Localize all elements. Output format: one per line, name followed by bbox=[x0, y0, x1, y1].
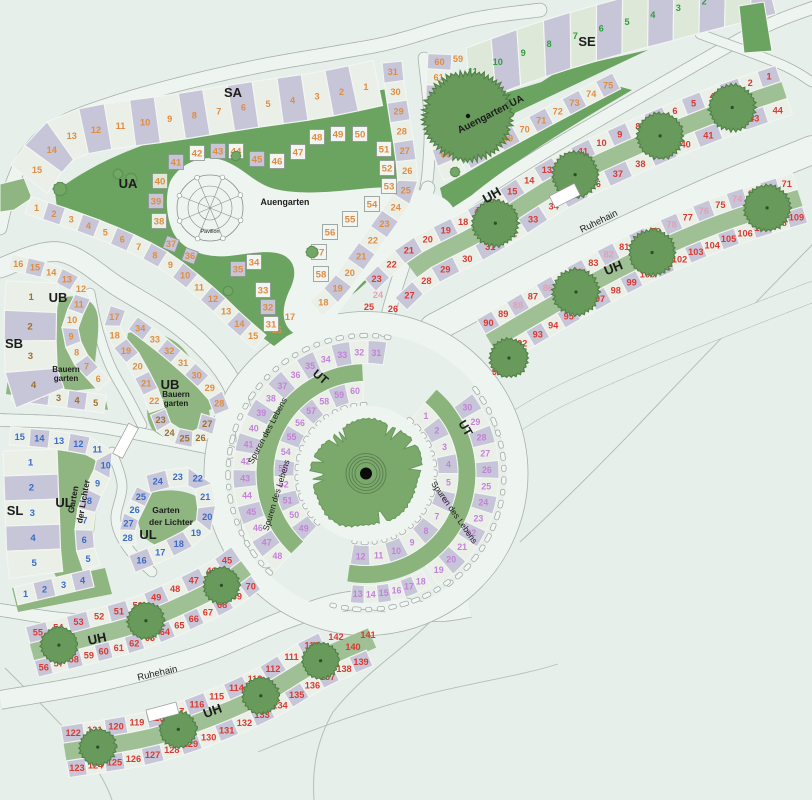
svg-text:3: 3 bbox=[315, 92, 320, 102]
svg-text:24: 24 bbox=[153, 477, 164, 487]
svg-text:122: 122 bbox=[66, 728, 81, 738]
svg-text:73: 73 bbox=[569, 98, 579, 108]
svg-text:UA: UA bbox=[119, 176, 138, 191]
svg-text:105: 105 bbox=[721, 234, 736, 244]
svg-text:127: 127 bbox=[145, 750, 160, 760]
svg-text:31: 31 bbox=[388, 67, 398, 77]
svg-text:6: 6 bbox=[672, 106, 677, 116]
svg-text:33: 33 bbox=[528, 215, 538, 225]
svg-text:112: 112 bbox=[265, 664, 280, 674]
svg-text:3: 3 bbox=[61, 580, 66, 590]
svg-text:7: 7 bbox=[216, 106, 221, 116]
svg-text:13: 13 bbox=[54, 436, 64, 446]
svg-text:6: 6 bbox=[599, 24, 604, 34]
svg-text:5: 5 bbox=[103, 227, 108, 237]
svg-text:34: 34 bbox=[135, 324, 146, 334]
svg-text:115: 115 bbox=[209, 692, 224, 702]
svg-text:15: 15 bbox=[507, 187, 517, 197]
svg-text:77: 77 bbox=[683, 213, 693, 223]
svg-text:SL: SL bbox=[7, 503, 24, 518]
svg-text:9: 9 bbox=[617, 130, 622, 140]
svg-text:43: 43 bbox=[213, 146, 224, 157]
svg-text:7: 7 bbox=[136, 242, 141, 252]
svg-text:8: 8 bbox=[546, 39, 551, 49]
svg-text:19: 19 bbox=[121, 346, 131, 356]
svg-text:56: 56 bbox=[295, 418, 305, 428]
svg-text:30: 30 bbox=[462, 254, 472, 264]
svg-text:70: 70 bbox=[519, 125, 529, 135]
svg-text:24: 24 bbox=[164, 428, 175, 438]
svg-text:78: 78 bbox=[666, 220, 676, 230]
svg-text:18: 18 bbox=[174, 539, 184, 549]
svg-text:2: 2 bbox=[42, 585, 47, 595]
svg-text:16: 16 bbox=[136, 556, 146, 566]
svg-text:2: 2 bbox=[29, 483, 34, 494]
svg-text:86: 86 bbox=[543, 283, 553, 293]
svg-text:22: 22 bbox=[193, 474, 203, 484]
svg-text:1: 1 bbox=[767, 72, 772, 82]
svg-text:14: 14 bbox=[234, 319, 245, 329]
svg-text:25: 25 bbox=[364, 302, 374, 312]
svg-text:UB: UB bbox=[49, 290, 68, 305]
svg-text:74: 74 bbox=[586, 89, 597, 99]
svg-text:26: 26 bbox=[195, 433, 205, 443]
svg-text:87: 87 bbox=[528, 292, 538, 302]
svg-text:4: 4 bbox=[290, 95, 296, 105]
svg-text:37: 37 bbox=[613, 169, 623, 179]
svg-text:6: 6 bbox=[82, 535, 87, 545]
svg-text:34: 34 bbox=[249, 257, 260, 268]
svg-text:9: 9 bbox=[168, 260, 173, 270]
svg-text:140: 140 bbox=[345, 642, 360, 652]
svg-text:23: 23 bbox=[155, 415, 165, 425]
svg-text:70: 70 bbox=[246, 582, 256, 592]
svg-text:20: 20 bbox=[345, 268, 355, 278]
svg-text:139: 139 bbox=[353, 657, 368, 667]
svg-text:83: 83 bbox=[588, 258, 598, 268]
svg-text:58: 58 bbox=[316, 269, 327, 280]
svg-text:54: 54 bbox=[281, 447, 291, 457]
svg-text:53: 53 bbox=[384, 181, 395, 192]
svg-text:der Lichter: der Lichter bbox=[149, 517, 194, 527]
svg-text:9: 9 bbox=[167, 114, 172, 124]
svg-text:60: 60 bbox=[98, 647, 108, 657]
svg-text:13: 13 bbox=[353, 589, 363, 599]
svg-text:15: 15 bbox=[248, 331, 258, 341]
svg-text:2: 2 bbox=[51, 209, 56, 219]
svg-text:51: 51 bbox=[283, 495, 293, 505]
svg-text:23: 23 bbox=[173, 472, 183, 482]
svg-text:10: 10 bbox=[493, 57, 503, 67]
svg-text:2: 2 bbox=[748, 78, 753, 88]
svg-text:55: 55 bbox=[287, 432, 297, 442]
svg-text:35: 35 bbox=[233, 264, 244, 275]
svg-text:5: 5 bbox=[624, 17, 629, 27]
svg-text:55: 55 bbox=[33, 628, 43, 638]
svg-text:14: 14 bbox=[46, 268, 57, 278]
svg-text:120: 120 bbox=[108, 722, 123, 732]
svg-text:15: 15 bbox=[15, 432, 25, 442]
svg-text:61: 61 bbox=[114, 643, 124, 653]
svg-text:48: 48 bbox=[170, 584, 180, 594]
svg-text:2: 2 bbox=[435, 425, 440, 435]
svg-text:57: 57 bbox=[306, 406, 316, 416]
svg-text:13: 13 bbox=[542, 165, 552, 175]
svg-text:126: 126 bbox=[126, 754, 141, 764]
svg-text:17: 17 bbox=[404, 582, 414, 592]
svg-text:35: 35 bbox=[305, 361, 315, 371]
svg-text:20: 20 bbox=[202, 512, 212, 522]
svg-text:8: 8 bbox=[424, 526, 429, 536]
svg-text:5: 5 bbox=[86, 554, 91, 564]
svg-text:12: 12 bbox=[208, 294, 218, 304]
svg-text:23: 23 bbox=[474, 513, 484, 523]
svg-text:1: 1 bbox=[363, 82, 368, 92]
svg-text:2: 2 bbox=[339, 87, 344, 97]
svg-text:52: 52 bbox=[94, 612, 104, 622]
svg-text:51: 51 bbox=[114, 607, 124, 617]
svg-text:garten: garten bbox=[54, 374, 79, 383]
svg-text:9: 9 bbox=[410, 538, 415, 548]
svg-text:8: 8 bbox=[152, 250, 157, 260]
svg-text:135: 135 bbox=[289, 690, 304, 700]
svg-text:75: 75 bbox=[603, 80, 613, 90]
svg-text:Bauern: Bauern bbox=[52, 365, 80, 374]
svg-text:Bauern: Bauern bbox=[162, 390, 190, 399]
svg-text:13: 13 bbox=[67, 131, 77, 141]
svg-text:44: 44 bbox=[242, 491, 252, 501]
svg-text:74: 74 bbox=[732, 194, 743, 204]
svg-text:18: 18 bbox=[416, 576, 426, 586]
svg-text:21: 21 bbox=[404, 246, 414, 256]
svg-text:1: 1 bbox=[28, 458, 34, 469]
svg-text:11: 11 bbox=[92, 444, 102, 454]
svg-text:47: 47 bbox=[293, 147, 304, 158]
svg-text:49: 49 bbox=[151, 593, 161, 603]
svg-text:29: 29 bbox=[393, 107, 403, 117]
svg-text:31: 31 bbox=[372, 348, 382, 358]
svg-text:54: 54 bbox=[367, 199, 378, 210]
svg-text:131: 131 bbox=[219, 725, 234, 735]
svg-text:3: 3 bbox=[69, 215, 74, 225]
svg-text:38: 38 bbox=[154, 216, 165, 227]
svg-text:2: 2 bbox=[27, 321, 32, 332]
svg-text:15: 15 bbox=[30, 263, 40, 273]
svg-text:34: 34 bbox=[321, 354, 331, 364]
svg-text:21: 21 bbox=[141, 379, 151, 389]
svg-text:27: 27 bbox=[400, 146, 410, 156]
svg-text:30: 30 bbox=[191, 370, 201, 380]
svg-text:12: 12 bbox=[73, 439, 83, 449]
svg-text:48: 48 bbox=[312, 132, 323, 143]
svg-text:90: 90 bbox=[483, 318, 493, 328]
svg-text:17: 17 bbox=[285, 312, 295, 322]
svg-text:60: 60 bbox=[350, 386, 360, 396]
svg-text:106: 106 bbox=[737, 228, 752, 238]
svg-text:72: 72 bbox=[553, 107, 563, 117]
svg-text:31: 31 bbox=[266, 319, 277, 330]
svg-text:27: 27 bbox=[202, 419, 212, 429]
svg-text:37: 37 bbox=[166, 239, 176, 249]
svg-text:28: 28 bbox=[477, 432, 487, 442]
svg-text:45: 45 bbox=[246, 507, 256, 517]
svg-text:23: 23 bbox=[379, 219, 389, 229]
svg-text:38: 38 bbox=[635, 159, 645, 169]
svg-text:40: 40 bbox=[249, 423, 259, 433]
svg-text:94: 94 bbox=[548, 320, 559, 330]
svg-text:37: 37 bbox=[278, 381, 288, 391]
svg-text:28: 28 bbox=[397, 126, 407, 136]
svg-text:14: 14 bbox=[366, 589, 376, 599]
svg-text:7: 7 bbox=[84, 361, 89, 371]
svg-text:141: 141 bbox=[360, 630, 375, 640]
svg-text:3: 3 bbox=[676, 3, 681, 13]
svg-text:31: 31 bbox=[178, 358, 188, 368]
svg-text:1: 1 bbox=[34, 203, 39, 213]
svg-text:71: 71 bbox=[536, 116, 546, 126]
svg-text:81: 81 bbox=[619, 242, 629, 252]
svg-text:98: 98 bbox=[611, 286, 621, 296]
svg-text:13: 13 bbox=[221, 307, 231, 317]
svg-text:56: 56 bbox=[39, 662, 49, 672]
svg-text:SA: SA bbox=[224, 85, 243, 100]
svg-text:15: 15 bbox=[379, 588, 389, 598]
svg-text:65: 65 bbox=[174, 621, 184, 631]
svg-text:2: 2 bbox=[702, 0, 707, 6]
svg-text:19: 19 bbox=[191, 528, 201, 538]
svg-text:24: 24 bbox=[479, 498, 489, 508]
svg-text:14: 14 bbox=[47, 145, 58, 155]
svg-text:10: 10 bbox=[101, 460, 111, 470]
svg-text:7: 7 bbox=[573, 31, 578, 41]
svg-text:41: 41 bbox=[171, 157, 182, 168]
svg-text:28: 28 bbox=[122, 533, 132, 543]
svg-text:47: 47 bbox=[262, 538, 272, 548]
svg-text:18: 18 bbox=[109, 331, 119, 341]
svg-text:20: 20 bbox=[446, 554, 456, 564]
svg-text:18: 18 bbox=[318, 298, 328, 308]
svg-text:32: 32 bbox=[164, 346, 174, 356]
svg-text:8: 8 bbox=[192, 110, 197, 120]
svg-text:39: 39 bbox=[256, 408, 266, 418]
svg-text:103: 103 bbox=[688, 247, 703, 257]
svg-text:27: 27 bbox=[480, 448, 490, 458]
svg-text:16: 16 bbox=[392, 586, 402, 596]
svg-text:45: 45 bbox=[222, 556, 232, 566]
svg-text:21: 21 bbox=[457, 542, 467, 552]
svg-text:67: 67 bbox=[203, 607, 213, 617]
svg-text:123: 123 bbox=[69, 763, 84, 773]
svg-text:4: 4 bbox=[86, 221, 92, 231]
svg-text:50: 50 bbox=[289, 510, 299, 520]
svg-text:38: 38 bbox=[266, 394, 276, 404]
svg-text:59: 59 bbox=[453, 54, 463, 64]
svg-text:14: 14 bbox=[524, 176, 535, 186]
svg-text:10: 10 bbox=[67, 315, 77, 325]
svg-text:41: 41 bbox=[703, 130, 713, 140]
svg-text:45: 45 bbox=[252, 154, 263, 165]
svg-text:32: 32 bbox=[263, 302, 274, 313]
svg-text:40: 40 bbox=[155, 176, 166, 187]
svg-text:76: 76 bbox=[699, 206, 709, 216]
svg-text:19: 19 bbox=[332, 284, 342, 294]
svg-text:25: 25 bbox=[481, 481, 491, 491]
svg-text:9: 9 bbox=[68, 332, 73, 342]
svg-text:33: 33 bbox=[150, 335, 160, 345]
svg-text:33: 33 bbox=[337, 350, 347, 360]
svg-text:51: 51 bbox=[379, 144, 390, 155]
svg-text:109: 109 bbox=[789, 213, 804, 223]
svg-text:49: 49 bbox=[333, 129, 344, 140]
svg-text:27: 27 bbox=[123, 518, 133, 528]
svg-text:26: 26 bbox=[402, 166, 412, 176]
svg-text:3: 3 bbox=[442, 442, 447, 452]
svg-text:82: 82 bbox=[604, 250, 614, 260]
svg-text:4: 4 bbox=[80, 576, 86, 586]
svg-text:60: 60 bbox=[434, 57, 444, 67]
svg-text:garten: garten bbox=[164, 399, 189, 408]
svg-text:22: 22 bbox=[386, 260, 396, 270]
svg-text:8: 8 bbox=[74, 348, 79, 358]
svg-text:5: 5 bbox=[446, 478, 451, 488]
svg-text:26: 26 bbox=[129, 505, 139, 515]
svg-text:32: 32 bbox=[354, 348, 364, 358]
svg-text:25: 25 bbox=[179, 433, 189, 443]
svg-text:20: 20 bbox=[132, 361, 142, 371]
svg-text:3: 3 bbox=[30, 508, 35, 519]
svg-text:33: 33 bbox=[258, 285, 269, 296]
svg-text:30: 30 bbox=[463, 403, 473, 413]
svg-text:SB: SB bbox=[5, 336, 23, 351]
svg-text:10: 10 bbox=[140, 118, 150, 128]
svg-text:9: 9 bbox=[95, 478, 100, 488]
svg-text:15: 15 bbox=[32, 165, 42, 175]
svg-text:89: 89 bbox=[498, 309, 508, 319]
svg-text:25: 25 bbox=[401, 185, 411, 195]
svg-text:11: 11 bbox=[74, 299, 84, 309]
svg-text:55: 55 bbox=[345, 214, 356, 225]
svg-text:53: 53 bbox=[73, 617, 83, 627]
svg-text:11: 11 bbox=[194, 282, 204, 292]
svg-text:29: 29 bbox=[205, 383, 215, 393]
svg-text:104: 104 bbox=[705, 241, 721, 251]
svg-text:36: 36 bbox=[291, 370, 301, 380]
svg-text:4: 4 bbox=[75, 396, 81, 406]
svg-text:58: 58 bbox=[319, 397, 329, 407]
svg-text:44: 44 bbox=[773, 106, 784, 116]
svg-text:5: 5 bbox=[93, 398, 98, 408]
svg-text:9: 9 bbox=[521, 48, 526, 58]
svg-text:14: 14 bbox=[34, 434, 45, 444]
svg-text:13: 13 bbox=[62, 275, 72, 285]
svg-text:23: 23 bbox=[371, 274, 381, 284]
svg-text:21: 21 bbox=[356, 252, 366, 262]
svg-text:19: 19 bbox=[434, 565, 444, 575]
svg-text:Pavillon: Pavillon bbox=[200, 229, 219, 235]
svg-text:SE: SE bbox=[578, 34, 596, 49]
svg-text:10: 10 bbox=[391, 546, 401, 556]
svg-text:119: 119 bbox=[129, 718, 144, 728]
svg-text:10: 10 bbox=[596, 138, 606, 148]
svg-text:27: 27 bbox=[404, 291, 414, 301]
svg-text:3: 3 bbox=[56, 393, 61, 403]
svg-text:1: 1 bbox=[424, 411, 429, 421]
svg-text:1: 1 bbox=[23, 589, 28, 599]
svg-text:5: 5 bbox=[265, 99, 270, 109]
svg-text:22: 22 bbox=[149, 396, 159, 406]
svg-text:49: 49 bbox=[299, 523, 309, 533]
svg-text:59: 59 bbox=[84, 651, 94, 661]
svg-text:75: 75 bbox=[715, 200, 725, 210]
svg-text:99: 99 bbox=[626, 277, 636, 287]
svg-text:17: 17 bbox=[109, 312, 119, 322]
svg-text:56: 56 bbox=[325, 227, 336, 238]
svg-text:66: 66 bbox=[189, 614, 199, 624]
svg-text:4: 4 bbox=[650, 10, 656, 20]
svg-text:26: 26 bbox=[388, 304, 398, 314]
svg-text:5: 5 bbox=[32, 558, 38, 569]
svg-text:47: 47 bbox=[189, 575, 199, 585]
svg-text:4: 4 bbox=[446, 460, 451, 470]
svg-text:6: 6 bbox=[241, 103, 246, 113]
svg-text:5: 5 bbox=[691, 99, 696, 109]
svg-text:24: 24 bbox=[373, 290, 384, 300]
svg-text:25: 25 bbox=[136, 492, 146, 502]
svg-text:29: 29 bbox=[440, 265, 450, 275]
svg-text:88: 88 bbox=[513, 300, 523, 310]
svg-text:3: 3 bbox=[28, 351, 33, 362]
svg-text:12: 12 bbox=[356, 551, 366, 561]
svg-text:4: 4 bbox=[31, 380, 37, 391]
svg-text:43: 43 bbox=[240, 474, 250, 484]
svg-text:130: 130 bbox=[201, 732, 216, 742]
svg-text:19: 19 bbox=[441, 225, 451, 235]
svg-text:UL: UL bbox=[139, 527, 156, 542]
svg-text:10: 10 bbox=[180, 271, 190, 281]
svg-text:Garten: Garten bbox=[152, 505, 179, 515]
svg-text:21: 21 bbox=[200, 492, 210, 502]
svg-text:132: 132 bbox=[237, 718, 252, 728]
svg-text:11: 11 bbox=[116, 121, 126, 131]
svg-text:39: 39 bbox=[151, 196, 162, 207]
svg-text:26: 26 bbox=[482, 465, 492, 475]
svg-text:4: 4 bbox=[30, 533, 36, 544]
svg-text:16: 16 bbox=[13, 259, 23, 269]
svg-text:48: 48 bbox=[273, 551, 283, 561]
svg-text:28: 28 bbox=[214, 399, 224, 409]
svg-text:28: 28 bbox=[421, 276, 431, 286]
svg-text:36: 36 bbox=[185, 251, 195, 261]
svg-text:142: 142 bbox=[328, 632, 343, 642]
svg-text:71: 71 bbox=[782, 179, 792, 189]
svg-text:11: 11 bbox=[374, 551, 383, 561]
svg-text:6: 6 bbox=[120, 234, 125, 244]
svg-text:20: 20 bbox=[423, 235, 433, 245]
svg-text:22: 22 bbox=[368, 235, 378, 245]
svg-text:52: 52 bbox=[382, 163, 393, 174]
svg-text:12: 12 bbox=[91, 125, 101, 135]
svg-text:24: 24 bbox=[391, 203, 402, 213]
svg-text:111: 111 bbox=[284, 652, 298, 662]
svg-text:42: 42 bbox=[192, 148, 203, 159]
svg-text:17: 17 bbox=[155, 548, 165, 558]
svg-text:18: 18 bbox=[458, 217, 468, 227]
svg-text:62: 62 bbox=[129, 638, 139, 648]
svg-text:1: 1 bbox=[29, 292, 35, 303]
svg-text:59: 59 bbox=[334, 390, 344, 400]
svg-text:6: 6 bbox=[96, 374, 101, 384]
svg-text:136: 136 bbox=[305, 680, 320, 690]
